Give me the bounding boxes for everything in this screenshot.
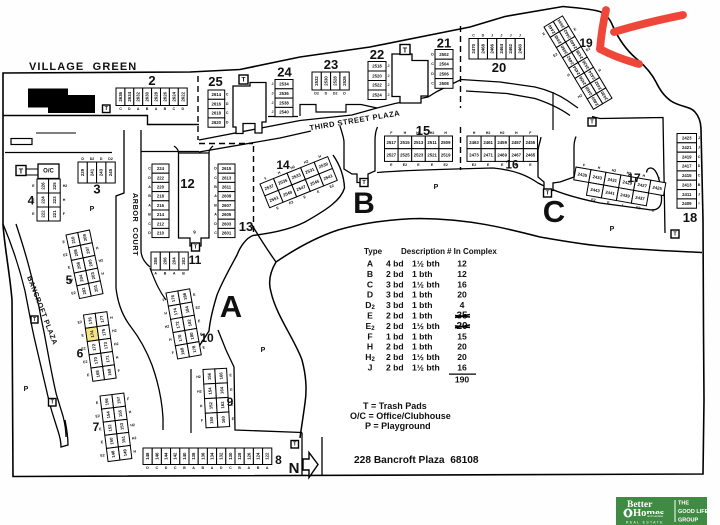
svg-text:B: B (214, 203, 217, 207)
svg-text:C: C (148, 222, 151, 226)
svg-text:243: 243 (99, 168, 104, 176)
svg-text:4: 4 (28, 194, 35, 208)
svg-text:H: H (515, 131, 518, 135)
svg-text:164: 164 (219, 386, 224, 394)
svg-text:J: J (510, 34, 512, 38)
svg-text:1 bth: 1 bth (412, 342, 433, 352)
svg-text:E2: E2 (100, 453, 105, 458)
svg-text:2613: 2613 (222, 175, 232, 180)
svg-text:D: D (482, 34, 485, 38)
svg-text:25: 25 (208, 74, 222, 89)
svg-text:154: 154 (105, 410, 111, 418)
svg-text:C: C (214, 176, 217, 180)
svg-text:2523: 2523 (414, 153, 424, 158)
svg-text:150: 150 (209, 416, 214, 424)
svg-text:C: C (226, 93, 229, 97)
svg-text:T: T (403, 45, 408, 54)
svg-text:2462: 2462 (508, 43, 513, 53)
svg-text:J: J (388, 83, 390, 87)
svg-text:C: C (543, 194, 565, 229)
svg-text:12: 12 (457, 259, 467, 269)
svg-text:1 bth: 1 bth (412, 300, 433, 310)
svg-text:2609: 2609 (222, 194, 232, 199)
svg-text:A: A (137, 107, 140, 111)
svg-text:12: 12 (180, 176, 194, 191)
svg-text:4: 4 (460, 300, 465, 310)
svg-text:2603: 2603 (222, 221, 232, 226)
svg-text:D: D (431, 52, 434, 56)
svg-text:20: 20 (457, 342, 467, 352)
svg-text:1 bth: 1 bth (412, 269, 433, 279)
svg-text:H2: H2 (486, 131, 491, 135)
svg-text:B: B (182, 272, 185, 276)
svg-text:222: 222 (157, 175, 165, 180)
svg-text:2 bd: 2 bd (386, 321, 404, 331)
svg-text:3 bd: 3 bd (386, 290, 404, 300)
svg-text:130: 130 (228, 452, 233, 460)
svg-text:245: 245 (108, 168, 113, 176)
svg-text:2532: 2532 (314, 76, 319, 86)
svg-text:1½ bth: 1½ bth (412, 321, 440, 331)
svg-text:17: 17 (627, 171, 641, 185)
svg-text:2618: 2618 (212, 111, 222, 116)
svg-text:GROUP: GROUP (678, 518, 699, 524)
svg-text:5: 5 (66, 273, 73, 287)
svg-text:221: 221 (52, 210, 57, 218)
svg-text:H2: H2 (112, 329, 117, 334)
svg-text:T: T (19, 166, 24, 175)
svg-text:2466: 2466 (490, 43, 495, 53)
svg-text:212: 212 (157, 221, 165, 226)
svg-text:A: A (173, 272, 176, 276)
svg-text:D2: D2 (314, 92, 319, 96)
svg-text:2522: 2522 (372, 83, 382, 88)
svg-text:216: 216 (157, 203, 165, 208)
svg-text:2465: 2465 (526, 153, 536, 158)
svg-text:2506: 2506 (439, 71, 449, 76)
svg-text:P: P (610, 226, 615, 233)
svg-text:228 Bancroft Plaza 68108: 228 Bancroft Plaza 68108 (354, 455, 479, 466)
svg-text:A: A (211, 466, 214, 470)
svg-text:D: D (148, 176, 151, 180)
svg-text:20: 20 (457, 352, 467, 362)
svg-text:N: N (289, 460, 300, 477)
svg-text:E2: E2 (95, 414, 100, 419)
svg-text:Type: Type (364, 247, 383, 256)
svg-text:134: 134 (210, 452, 215, 460)
svg-text:H2: H2 (114, 342, 119, 347)
svg-text:C: C (155, 466, 158, 470)
svg-text:E2: E2 (636, 206, 641, 211)
svg-text:C: C (148, 167, 151, 171)
svg-text:D: D (325, 92, 328, 96)
svg-text:T: T (33, 317, 36, 323)
svg-text:1 bd: 1 bd (386, 331, 404, 341)
svg-text:C: C (367, 279, 373, 289)
svg-text:126: 126 (246, 452, 251, 460)
svg-text:D2: D2 (108, 157, 113, 161)
svg-text:A: A (192, 466, 195, 470)
svg-text:B: B (353, 187, 375, 220)
svg-text:2530: 2530 (323, 76, 328, 86)
svg-text:2419: 2419 (682, 154, 692, 159)
svg-text:D: D (220, 466, 223, 470)
svg-text:T: T (242, 76, 246, 83)
svg-text:18: 18 (683, 210, 697, 225)
svg-text:2614: 2614 (212, 92, 222, 97)
svg-text:138: 138 (191, 452, 196, 460)
svg-text:2417: 2417 (682, 164, 692, 169)
svg-text:214: 214 (157, 212, 165, 217)
svg-text:H2: H2 (164, 324, 169, 329)
svg-text:2611: 2611 (222, 185, 232, 190)
svg-text:8: 8 (275, 453, 282, 467)
svg-text:D: D (128, 107, 131, 111)
svg-text:A: A (266, 466, 269, 470)
svg-text:A: A (367, 259, 373, 269)
svg-text:B: B (148, 194, 151, 198)
svg-text:157: 157 (116, 396, 122, 404)
svg-text:2 bd: 2 bd (386, 352, 404, 362)
svg-text:E2: E2 (77, 320, 82, 325)
svg-text:1½ bth: 1½ bth (412, 352, 440, 362)
svg-text:D: D (181, 107, 184, 111)
svg-text:2513: 2513 (414, 140, 424, 145)
svg-text:E2: E2 (403, 163, 407, 167)
svg-text:218: 218 (157, 194, 165, 199)
svg-text:H: H (473, 131, 476, 135)
svg-text:J: J (698, 192, 700, 196)
svg-text:P: P (261, 347, 266, 354)
svg-text:2 bd: 2 bd (386, 311, 404, 321)
svg-text:11: 11 (189, 253, 202, 267)
svg-text:226: 226 (40, 182, 45, 190)
svg-text:2509: 2509 (441, 140, 451, 145)
svg-text:149: 149 (122, 448, 128, 456)
svg-text:2517: 2517 (387, 140, 397, 145)
svg-text:D: D (367, 290, 373, 300)
svg-text:and Gardens: and Gardens (647, 514, 664, 518)
svg-text:2634: 2634 (127, 91, 132, 101)
svg-text:Description: Description (401, 247, 445, 256)
svg-text:J: J (368, 363, 373, 373)
svg-text:E2: E2 (472, 163, 476, 167)
svg-text:2457: 2457 (512, 140, 522, 145)
svg-text:2468: 2468 (480, 43, 485, 53)
svg-text:156: 156 (207, 372, 212, 380)
svg-text:2511: 2511 (427, 140, 437, 145)
svg-text:2515: 2515 (400, 140, 410, 145)
svg-text:D2: D2 (90, 157, 95, 161)
svg-text:2 bd: 2 bd (386, 342, 404, 352)
svg-text:208: 208 (153, 257, 158, 265)
svg-text:C: C (698, 174, 701, 178)
svg-text:2528: 2528 (333, 76, 338, 86)
svg-text:13: 13 (239, 219, 253, 234)
svg-text:2423: 2423 (682, 136, 692, 141)
svg-text:J: J (491, 34, 493, 38)
svg-text:19: 19 (579, 36, 593, 50)
svg-text:10: 10 (200, 331, 214, 345)
svg-text:C: C (431, 81, 434, 85)
svg-text:E2: E2 (83, 360, 88, 365)
svg-text:C: C (229, 466, 232, 470)
svg-text:D: D (165, 466, 168, 470)
svg-text:A: A (214, 213, 217, 217)
svg-text:P: P (90, 206, 95, 213)
svg-text:C: C (226, 111, 229, 115)
svg-text:A: A (148, 185, 151, 189)
svg-text:I: I (699, 202, 700, 206)
svg-text:2626: 2626 (162, 91, 167, 101)
svg-text:152: 152 (107, 424, 113, 432)
svg-text:225: 225 (52, 182, 57, 190)
svg-text:2470: 2470 (471, 43, 476, 53)
svg-text:J: J (388, 74, 390, 78)
svg-text:3 bd: 3 bd (386, 300, 404, 310)
svg-text:136: 136 (200, 452, 205, 460)
svg-text:J: J (519, 34, 521, 38)
svg-text:24: 24 (277, 65, 292, 80)
svg-text:202: 202 (181, 257, 186, 265)
svg-text:156: 156 (104, 397, 110, 405)
svg-text:T: T (590, 119, 594, 125)
svg-text:2 bd: 2 bd (386, 269, 404, 279)
svg-text:A: A (155, 107, 158, 111)
svg-text:B: B (148, 213, 151, 217)
svg-text:D: D (226, 102, 229, 106)
svg-text:148: 148 (110, 450, 116, 458)
svg-text:241: 241 (90, 168, 95, 176)
svg-text:# In Complex: # In Complex (447, 247, 497, 256)
svg-text:2534: 2534 (279, 82, 289, 87)
svg-text:220: 220 (157, 185, 165, 190)
svg-text:H2: H2 (197, 390, 202, 394)
svg-text:204: 204 (172, 257, 177, 265)
svg-text:A: A (247, 466, 250, 470)
svg-text:206: 206 (163, 257, 168, 265)
svg-text:142: 142 (173, 452, 178, 460)
svg-text:B: B (367, 269, 373, 279)
svg-text:2536: 2536 (279, 91, 289, 96)
svg-text:ARBOR COURT: ARBOR COURT (131, 193, 140, 256)
svg-text:3 bd: 3 bd (386, 279, 404, 289)
svg-text:H: H (404, 131, 407, 135)
svg-text:2630: 2630 (145, 91, 150, 101)
svg-text:H2: H2 (430, 131, 435, 135)
svg-text:2508: 2508 (439, 81, 449, 86)
svg-text:D: D (81, 157, 84, 161)
svg-text:190: 190 (455, 375, 470, 385)
svg-text:H: H (63, 198, 66, 202)
svg-text:2461: 2461 (483, 140, 493, 145)
svg-text:2527: 2527 (387, 153, 397, 158)
svg-text:J: J (388, 93, 390, 97)
svg-text:14: 14 (276, 158, 290, 172)
svg-text:4 bd: 4 bd (386, 259, 404, 269)
svg-text:D: D (100, 157, 103, 161)
svg-text:T: T (194, 244, 198, 250)
svg-text:C: C (174, 466, 177, 470)
svg-text:2518: 2518 (372, 64, 382, 69)
svg-text:210: 210 (157, 231, 165, 236)
svg-text:2636: 2636 (118, 91, 123, 101)
svg-text:E: E (367, 311, 373, 321)
svg-text:223: 223 (52, 196, 57, 204)
svg-text:150: 150 (109, 437, 115, 445)
svg-text:D: D (214, 167, 217, 171)
svg-text:15: 15 (416, 123, 430, 138)
svg-text:J: J (272, 101, 274, 105)
svg-text:2521: 2521 (427, 153, 437, 158)
svg-text:2409: 2409 (682, 201, 692, 206)
svg-text:D: D (148, 231, 151, 235)
svg-text:15: 15 (457, 331, 467, 341)
svg-text:2455: 2455 (526, 140, 536, 145)
svg-text:132: 132 (219, 452, 224, 460)
svg-text:2540: 2540 (279, 110, 289, 115)
svg-text:T = Trash Pads: T = Trash Pads (363, 401, 427, 411)
svg-text:2524: 2524 (372, 92, 382, 97)
svg-text:144: 144 (164, 452, 169, 460)
svg-text:D: D (214, 222, 217, 226)
svg-text:1 bth: 1 bth (412, 331, 433, 341)
svg-text:H: H (367, 342, 373, 352)
svg-text:D2: D2 (333, 92, 338, 96)
svg-text:2421: 2421 (682, 145, 692, 150)
svg-text:C: C (431, 62, 434, 66)
svg-text:J: J (272, 110, 274, 114)
svg-text:H2: H2 (500, 131, 505, 135)
svg-text:D: D (226, 121, 229, 125)
svg-text:12: 12 (457, 269, 467, 279)
svg-text:T: T (673, 231, 677, 237)
svg-text:B: B (214, 185, 217, 189)
svg-text:C: C (214, 231, 217, 235)
svg-text:2464: 2464 (499, 43, 504, 53)
svg-text:2525: 2525 (400, 153, 410, 158)
svg-text:J: J (698, 136, 700, 140)
svg-text:2463: 2463 (469, 140, 479, 145)
svg-text:2628: 2628 (154, 91, 159, 101)
svg-text:124: 124 (256, 452, 261, 460)
svg-text:162: 162 (220, 401, 225, 409)
svg-text:GOOD LIFE: GOOD LIFE (678, 509, 709, 515)
svg-text:J: J (500, 34, 502, 38)
svg-text:A: A (220, 289, 242, 324)
svg-text:1 bth: 1 bth (412, 290, 433, 300)
svg-text:2471: 2471 (483, 153, 493, 158)
svg-text:155: 155 (117, 409, 123, 417)
svg-text:20: 20 (457, 290, 467, 300)
svg-text:239: 239 (80, 168, 85, 176)
svg-text:B: B (698, 183, 701, 187)
svg-text:1½ bth: 1½ bth (412, 259, 440, 269)
svg-text:E2: E2 (443, 163, 447, 167)
svg-text:REAL ESTATE: REAL ESTATE (626, 521, 664, 525)
svg-text:E2: E2 (195, 305, 200, 310)
svg-text:16: 16 (457, 279, 467, 289)
svg-text:166: 166 (218, 372, 223, 380)
svg-text:2502: 2502 (439, 52, 449, 57)
svg-text:20: 20 (492, 60, 506, 75)
svg-text:J: J (698, 146, 700, 150)
svg-text:D: D (698, 164, 701, 168)
svg-text:B: B (238, 466, 241, 470)
svg-text:16: 16 (505, 158, 519, 172)
svg-text:H2: H2 (611, 168, 616, 173)
svg-text:B: B (183, 466, 186, 470)
svg-text:146: 146 (154, 452, 159, 460)
svg-text:E2: E2 (591, 198, 596, 203)
svg-text:2519: 2519 (441, 153, 451, 158)
svg-text:2504: 2504 (439, 62, 449, 67)
svg-text:2624: 2624 (171, 91, 176, 101)
svg-text:O/C: O/C (43, 169, 54, 175)
svg-text:C: C (172, 107, 175, 111)
svg-text:2413: 2413 (682, 182, 692, 187)
svg-text:160: 160 (221, 415, 226, 423)
svg-text:2615: 2615 (222, 166, 232, 171)
svg-text:153: 153 (119, 422, 125, 430)
svg-text:T: T (362, 180, 366, 186)
svg-text:154: 154 (207, 387, 212, 395)
svg-text:P = Playground: P = Playground (365, 421, 431, 431)
svg-text:7: 7 (93, 420, 100, 434)
svg-text:C: C (698, 155, 701, 159)
svg-text:2607: 2607 (222, 203, 232, 208)
svg-text:152: 152 (208, 401, 213, 409)
svg-text:3: 3 (93, 182, 100, 197)
svg-text:148: 148 (145, 452, 150, 460)
svg-text:23: 23 (324, 57, 338, 72)
svg-text:1 bth: 1 bth (412, 311, 433, 321)
svg-text:2459: 2459 (497, 140, 507, 145)
svg-text:F: F (367, 331, 372, 341)
svg-text:H2: H2 (132, 436, 137, 441)
svg-text:2473: 2473 (469, 153, 479, 158)
svg-text:2620: 2620 (212, 120, 222, 125)
svg-text:A: A (214, 194, 217, 198)
svg-text:P: P (434, 184, 439, 191)
svg-text:H: H (444, 131, 447, 135)
svg-text:B: B (257, 466, 260, 470)
svg-text:1½ bth: 1½ bth (412, 279, 440, 289)
svg-text:2622: 2622 (180, 91, 185, 101)
svg-text:2616: 2616 (212, 102, 222, 107)
svg-text:H2: H2 (130, 423, 135, 428)
svg-text:2520: 2520 (372, 73, 382, 78)
svg-text:D: D (431, 72, 434, 76)
svg-text:B: B (164, 272, 167, 276)
svg-text:2526: 2526 (342, 76, 347, 86)
svg-text:B: B (164, 107, 167, 111)
svg-text:9: 9 (227, 395, 234, 409)
svg-text:151: 151 (121, 435, 127, 443)
svg-text:21: 21 (437, 36, 451, 51)
svg-text:A: A (148, 203, 151, 207)
svg-text:122: 122 (265, 452, 270, 460)
svg-text:P: P (24, 386, 29, 393)
svg-text:O/C = Office/Clubhouse: O/C = Office/Clubhouse (350, 411, 451, 421)
svg-text:J: J (272, 82, 274, 86)
svg-text:C: C (472, 34, 475, 38)
svg-text:2538: 2538 (279, 100, 289, 105)
svg-text:B: B (146, 107, 149, 111)
svg-text:2 bd: 2 bd (386, 363, 404, 373)
svg-text:H2: H2 (196, 375, 201, 379)
svg-text:THE: THE (678, 501, 689, 507)
